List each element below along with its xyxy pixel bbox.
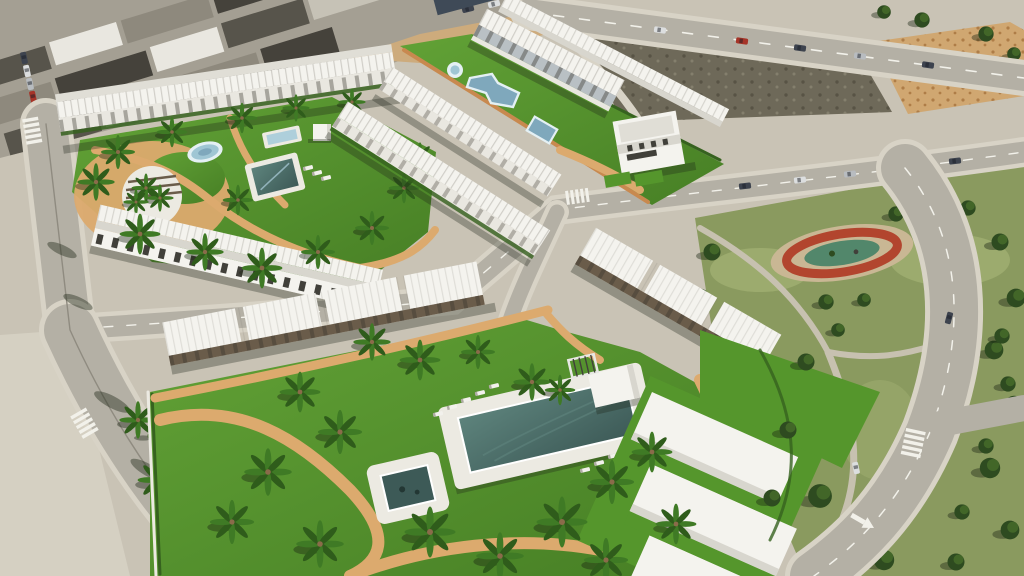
window: [627, 145, 633, 152]
window: [651, 141, 657, 148]
aerial-render: [0, 0, 1024, 576]
cube-shadow: [308, 139, 331, 143]
road-branch: [940, 408, 1024, 424]
window: [662, 138, 668, 145]
window: [639, 143, 645, 150]
aerial-render-stage: [0, 0, 1024, 576]
round-feature-water: [450, 65, 459, 74]
